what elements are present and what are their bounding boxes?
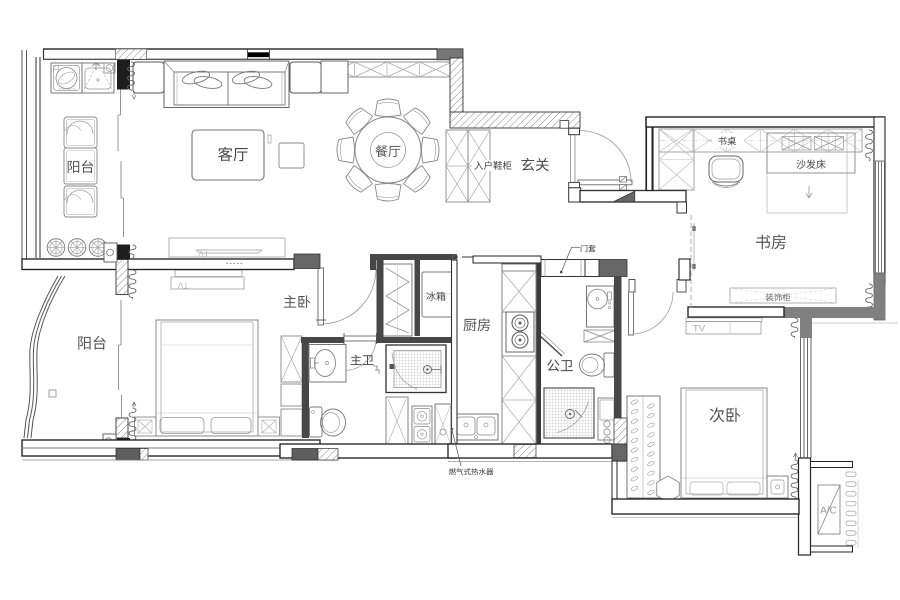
svg-text:TV: TV <box>177 281 188 291</box>
svg-text:A/C: A/C <box>820 506 837 517</box>
svg-text:TV: TV <box>198 249 209 259</box>
svg-text:TV: TV <box>693 324 706 335</box>
